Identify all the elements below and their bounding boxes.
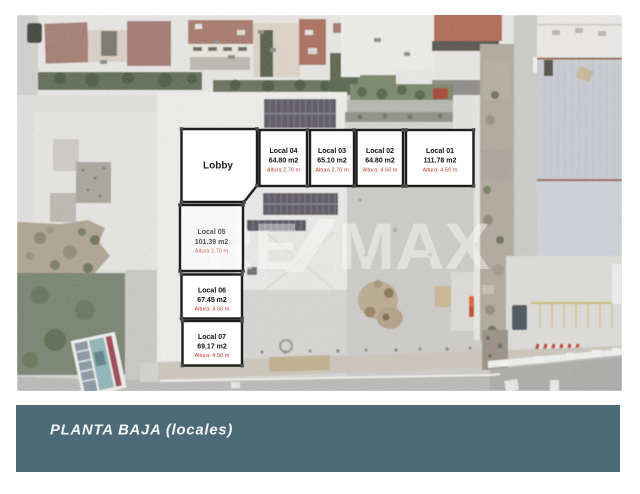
svg-text:Local 01: Local 01 xyxy=(426,148,454,155)
svg-text:111.78 m2: 111.78 m2 xyxy=(424,158,457,165)
svg-text:Altura: 4.50 m: Altura: 4.50 m xyxy=(423,168,458,174)
svg-text:Local 04: Local 04 xyxy=(269,148,297,155)
svg-text:MAX: MAX xyxy=(338,209,490,283)
svg-text:69.17 m2: 69.17 m2 xyxy=(197,344,227,351)
svg-text:Local 02: Local 02 xyxy=(366,148,394,155)
svg-text:PLANTA BAJA (locales): PLANTA BAJA (locales) xyxy=(50,423,233,439)
svg-text:Local 07: Local 07 xyxy=(198,334,226,341)
svg-text:Lobby: Lobby xyxy=(203,161,233,172)
svg-text:Altura 2.70 m: Altura 2.70 m xyxy=(267,168,301,174)
svg-text:Altura: 4.50 m: Altura: 4.50 m xyxy=(363,168,398,174)
svg-text:64.80 m2: 64.80 m2 xyxy=(269,158,299,165)
svg-text:101.39 m2: 101.39 m2 xyxy=(195,239,229,246)
svg-text:Altura 2.70 m: Altura 2.70 m xyxy=(195,249,229,255)
svg-text:Local 06: Local 06 xyxy=(198,288,226,295)
svg-text:Local 05: Local 05 xyxy=(197,229,225,236)
svg-text:67.45 m2: 67.45 m2 xyxy=(197,297,227,304)
svg-text:65.10 m2: 65.10 m2 xyxy=(317,158,347,165)
svg-text:Altura: 4.50 m: Altura: 4.50 m xyxy=(195,353,230,359)
svg-text:Local 03: Local 03 xyxy=(318,148,346,155)
svg-text:64.80 m2: 64.80 m2 xyxy=(365,158,395,165)
svg-text:Altura: 4.50 m: Altura: 4.50 m xyxy=(195,307,230,313)
svg-text:Altura 2.70 m: Altura 2.70 m xyxy=(315,168,349,174)
